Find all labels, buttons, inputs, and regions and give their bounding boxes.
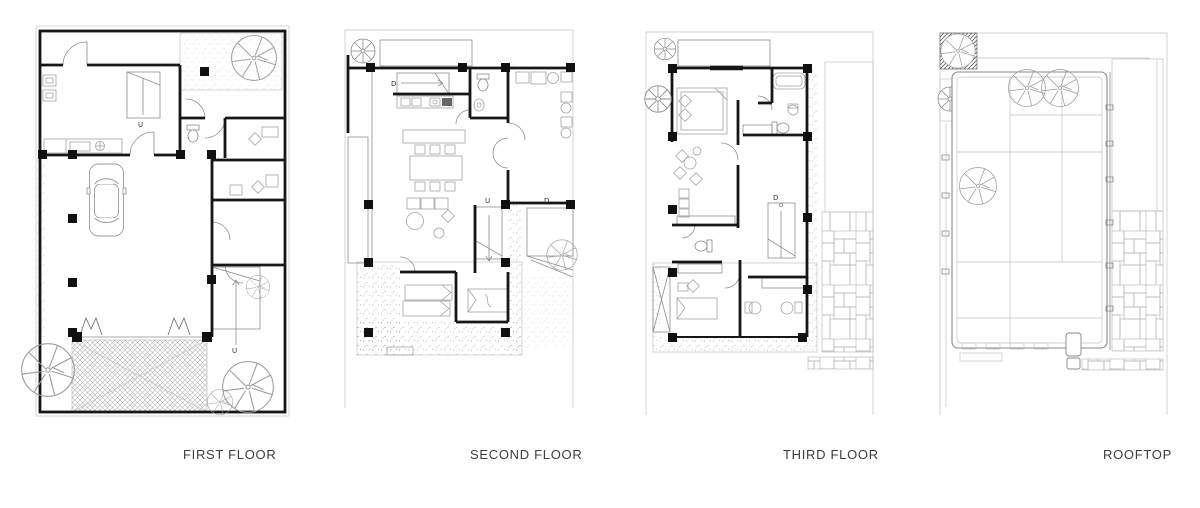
master-bedroom: [677, 88, 727, 134]
driveway-hatch: [72, 340, 207, 412]
bathroom-fixtures: [187, 125, 199, 142]
top-louver-band: [380, 40, 472, 66]
kitchen-stair: [397, 73, 449, 94]
stair-direction-label: D: [544, 197, 549, 205]
stair-direction-label: U: [232, 347, 237, 355]
kitchen-counter: [397, 96, 453, 108]
rooftop-hatch-access: [1066, 333, 1081, 369]
terrace-stipple: [653, 68, 818, 352]
courtyard: [180, 33, 282, 90]
terrace-stipple: [357, 205, 571, 355]
top-louver-band: [678, 40, 770, 66]
walls: [672, 68, 807, 337]
rooftop-label: ROOFTOP: [1103, 447, 1172, 462]
stair-direction-label: D: [391, 80, 396, 88]
exterior-stair: [212, 267, 260, 345]
floor-plans-sheet: U U: [0, 0, 1200, 508]
sitting-area: [674, 147, 703, 217]
right-room-furniture: [516, 72, 572, 138]
left-planter-strip: [37, 155, 46, 337]
rooftop-plan: [930, 15, 1190, 435]
kitchen-fixtures: [43, 75, 122, 153]
roof-slab: [952, 72, 1107, 348]
wardrobe-bands: [677, 125, 807, 288]
bathroom-fixtures: [772, 73, 805, 134]
spiral-stair: [351, 39, 375, 63]
center-stair: [476, 207, 502, 261]
small-bath: [695, 240, 712, 252]
second-floor-label: SECOND FLOOR: [470, 447, 582, 462]
center-stair: [768, 203, 795, 258]
exterior-stair: [527, 208, 577, 277]
stair-direction-label: U: [485, 197, 490, 205]
car: [87, 164, 126, 236]
hatched-block: [940, 33, 977, 69]
second-floor-plan: D U D: [335, 15, 605, 435]
left-louver-strip: [348, 71, 372, 263]
first-floor-plan: U U: [30, 15, 300, 435]
bathroom-fixtures: [474, 74, 489, 111]
interior-stair: [127, 72, 160, 118]
living-dining-furniture: [403, 130, 465, 238]
third-floor-label: THIRD FLOOR: [783, 447, 879, 462]
stair-direction-label: U: [138, 121, 143, 129]
gate-symbols: [80, 318, 202, 337]
third-floor-plan: D: [640, 15, 890, 435]
stair-direction-label: D: [773, 194, 778, 202]
left-edge-details: [942, 155, 949, 274]
first-floor-label: FIRST FLOOR: [183, 447, 276, 462]
